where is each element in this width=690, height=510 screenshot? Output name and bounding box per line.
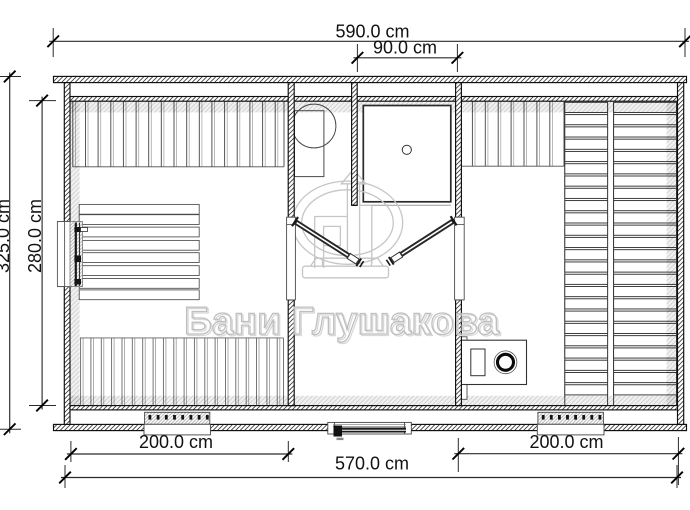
svg-text:Бани Глушакова: Бани Глушакова (184, 300, 499, 343)
svg-text:325.0 cm: 325.0 cm (0, 199, 13, 273)
svg-text:280.0 cm: 280.0 cm (25, 199, 45, 273)
svg-text:90.0 cm: 90.0 cm (373, 38, 437, 58)
svg-text:200.0 cm: 200.0 cm (529, 432, 603, 452)
svg-text:570.0 cm: 570.0 cm (335, 454, 409, 474)
svg-text:200.0 cm: 200.0 cm (139, 432, 213, 452)
